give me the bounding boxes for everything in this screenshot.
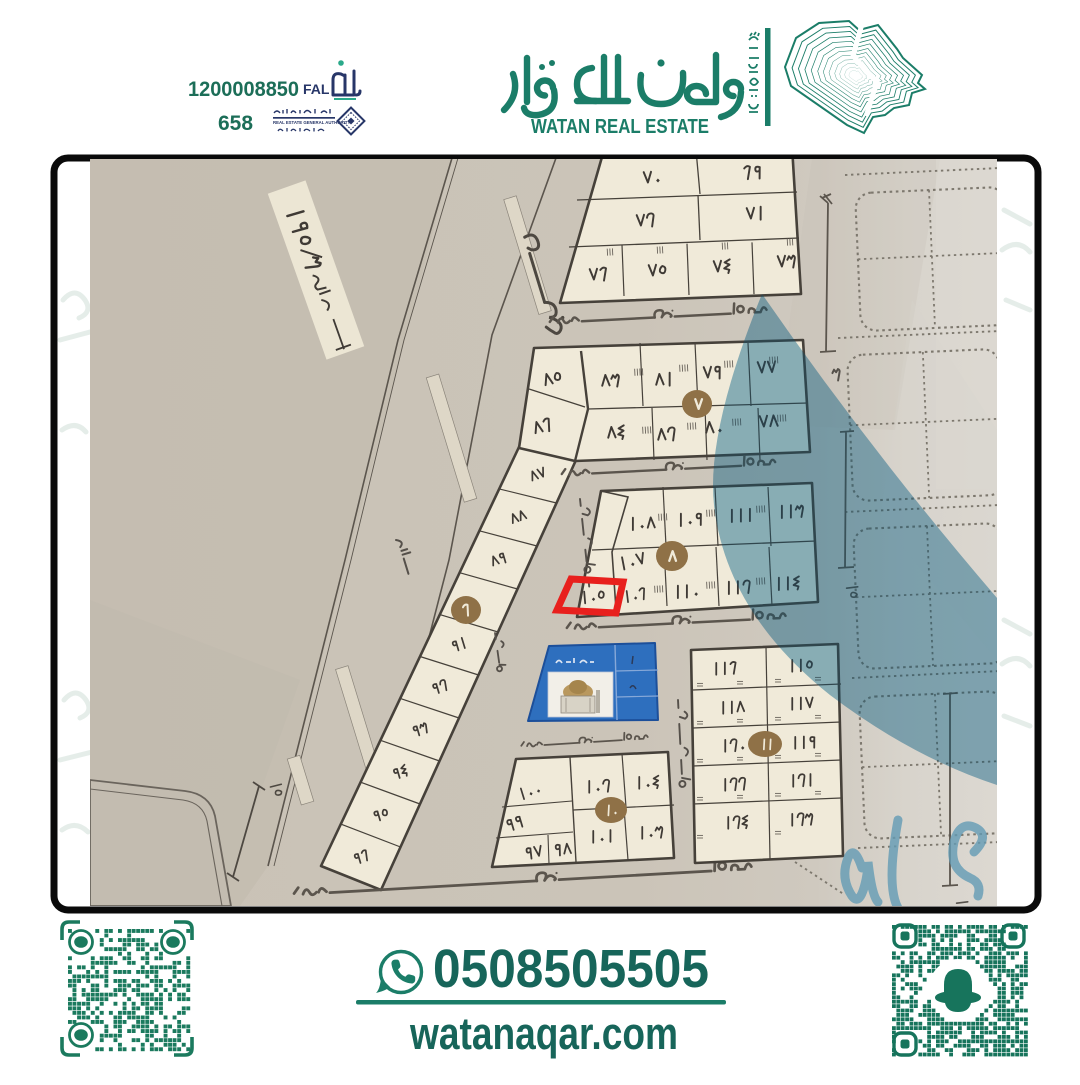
- svg-text:1200008850: 1200008850: [188, 78, 299, 101]
- svg-text:0508505505: 0508505505: [433, 939, 709, 999]
- svg-text:WATAN REAL ESTATE: WATAN REAL ESTATE: [531, 116, 709, 138]
- svg-text:658: 658: [218, 112, 253, 135]
- svg-text:watanaqar.com: watanaqar.com: [409, 1008, 678, 1059]
- svg-text:FAL: FAL: [303, 81, 330, 97]
